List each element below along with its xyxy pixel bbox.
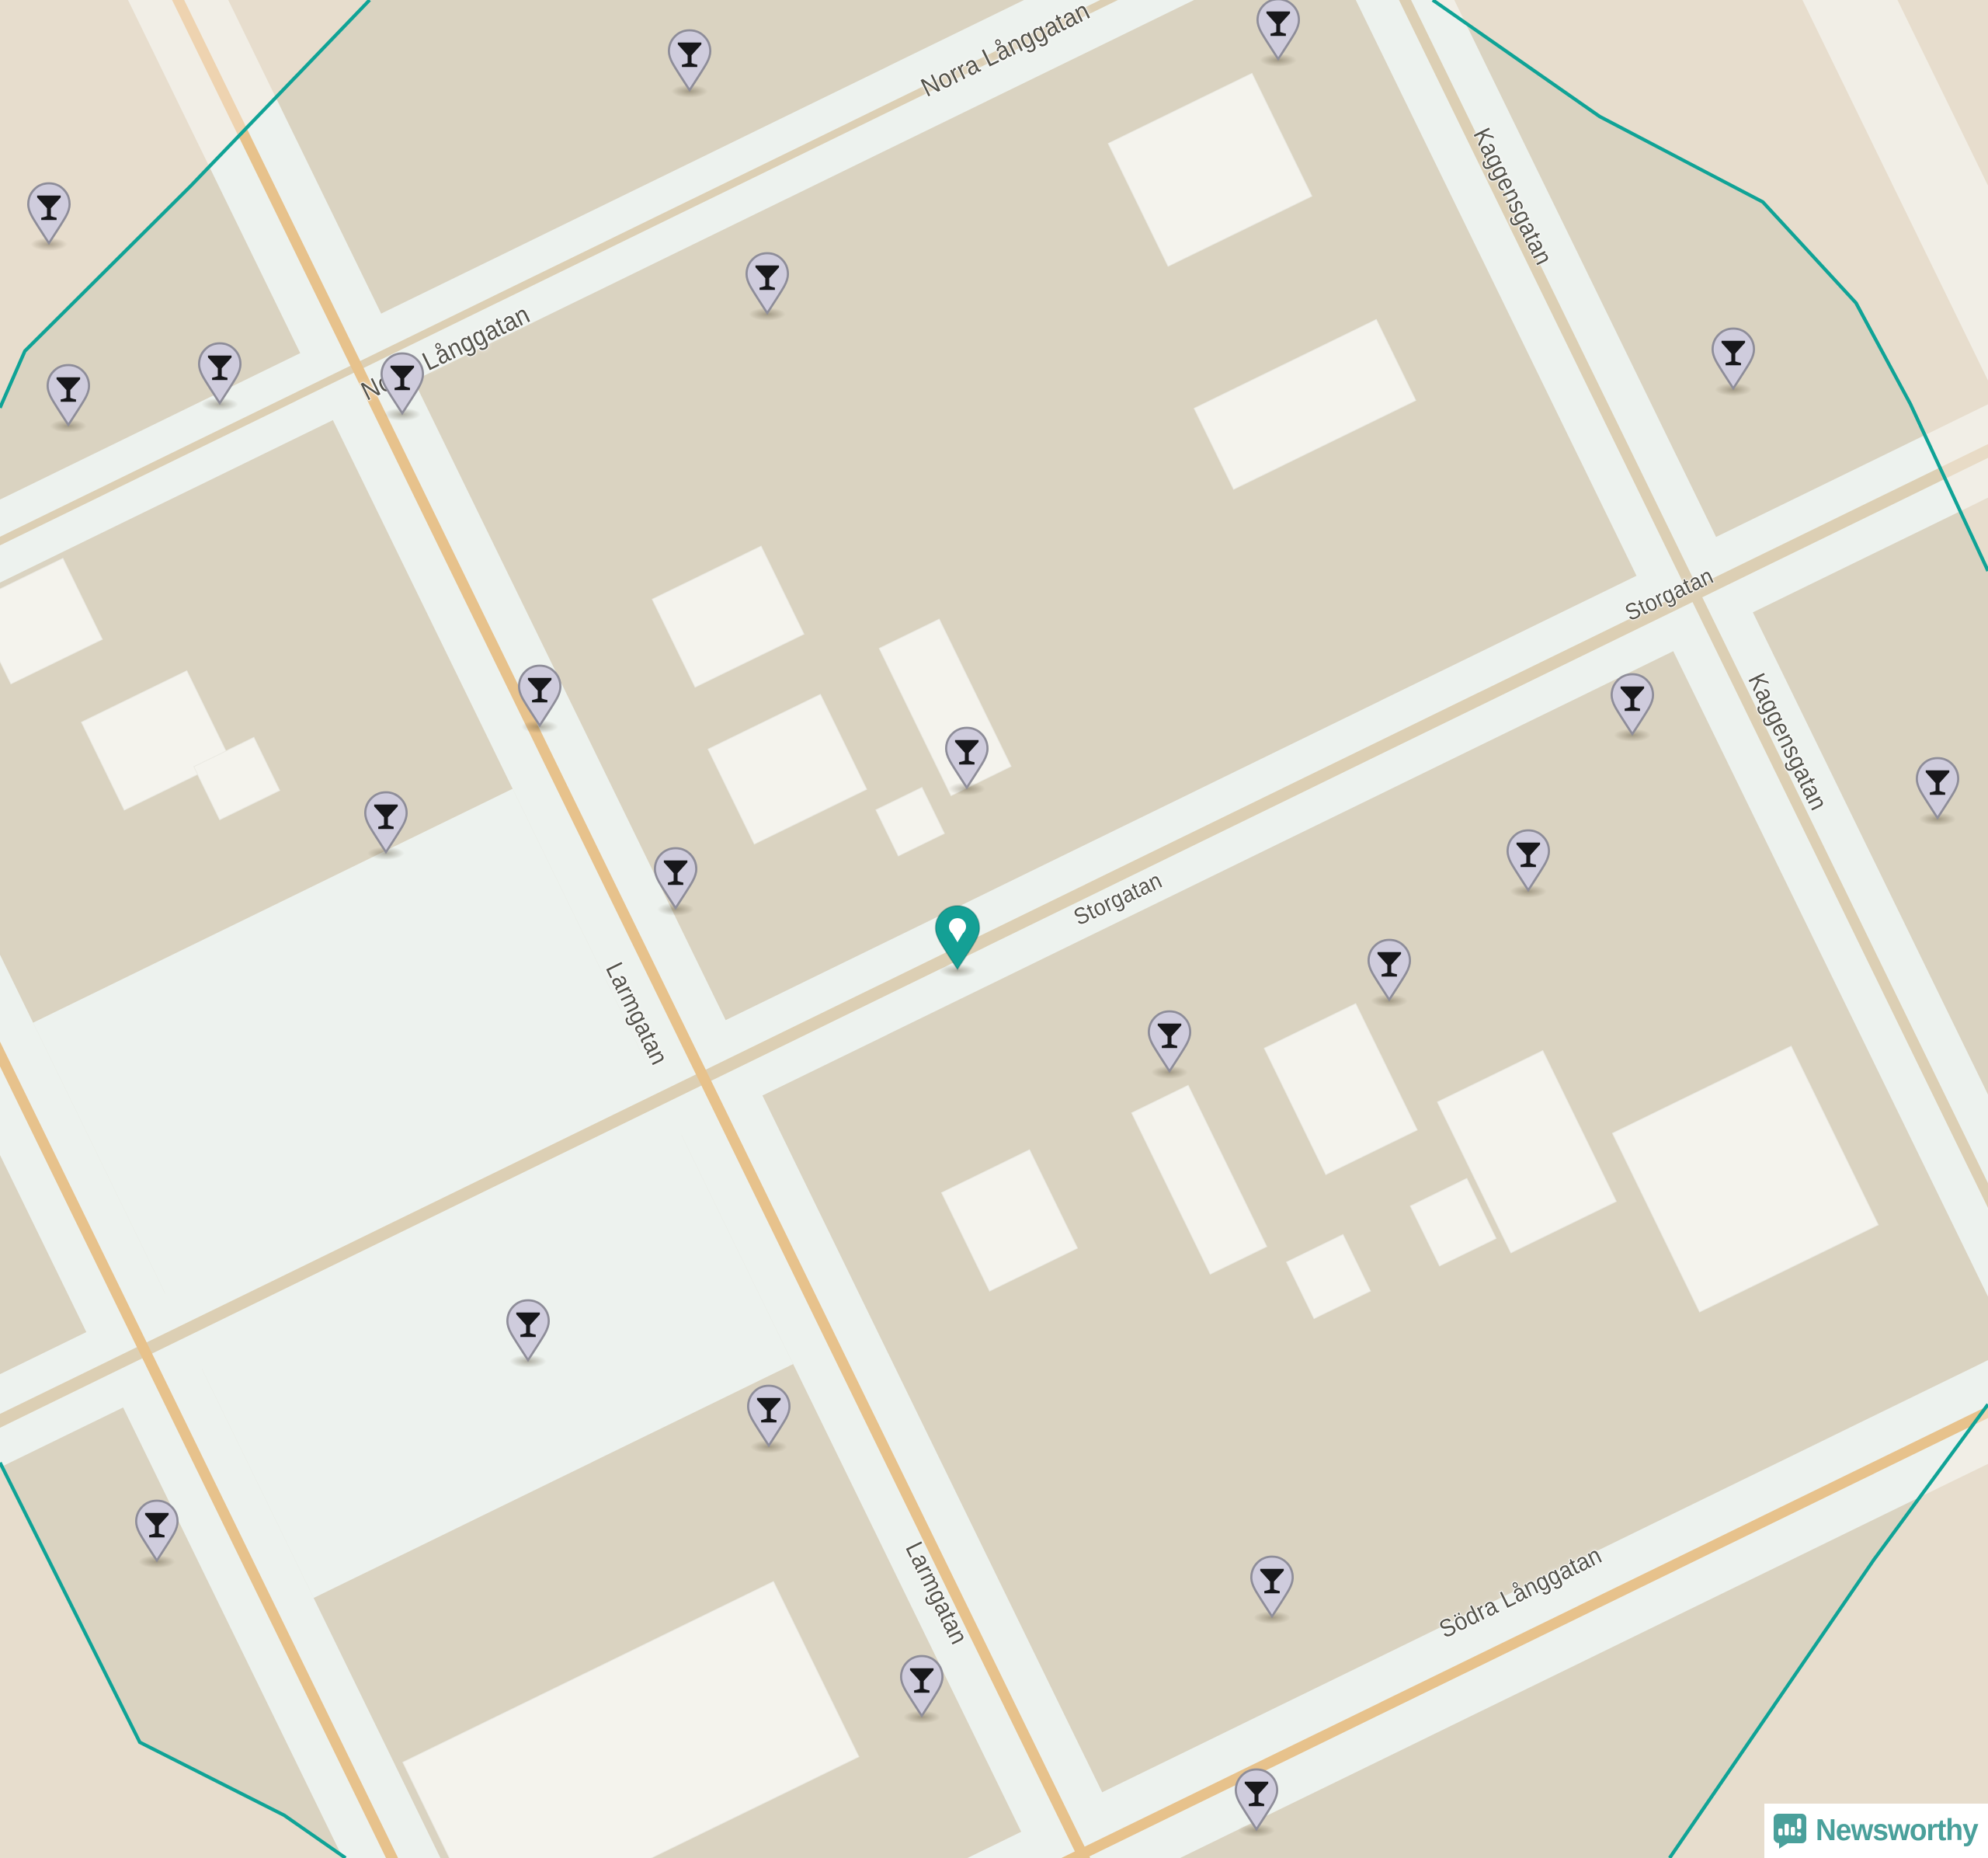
venue-marker-pin[interactable] xyxy=(1504,828,1552,892)
martini-glass-icon xyxy=(1608,672,1656,736)
venue-marker-pin[interactable] xyxy=(25,181,73,245)
martini-glass-icon xyxy=(44,363,92,427)
martini-glass-icon xyxy=(943,725,991,790)
martini-glass-icon xyxy=(378,351,426,416)
martini-glass-icon xyxy=(1248,1554,1296,1619)
venue-marker-pin[interactable] xyxy=(362,790,410,854)
martini-glass-icon xyxy=(196,341,244,405)
venue-marker-pin[interactable] xyxy=(898,1654,946,1718)
martini-glass-icon xyxy=(652,846,700,910)
venue-marker-pin[interactable] xyxy=(1365,938,1413,1002)
watermark-text: Newsworthy xyxy=(1816,1814,1978,1848)
martini-glass-icon xyxy=(1145,1009,1194,1073)
venue-marker-pin[interactable] xyxy=(745,1383,793,1448)
martini-glass-icon xyxy=(516,663,564,728)
venue-marker-pin[interactable] xyxy=(666,28,714,92)
primary-location-pin[interactable] xyxy=(932,903,983,972)
venue-marker-pin[interactable] xyxy=(1254,0,1302,61)
venue-marker-pin[interactable] xyxy=(1913,756,1962,820)
venue-marker-pin[interactable] xyxy=(133,1498,181,1563)
venue-marker-pin[interactable] xyxy=(1145,1009,1194,1073)
newsworthy-watermark: Newsworthy xyxy=(1764,1804,1988,1858)
martini-glass-icon xyxy=(504,1298,552,1362)
venue-marker-pin[interactable] xyxy=(504,1298,552,1362)
martini-glass-icon xyxy=(1504,828,1552,892)
venue-marker-pin[interactable] xyxy=(1248,1554,1296,1619)
martini-glass-icon xyxy=(133,1498,181,1563)
newsworthy-logo-icon xyxy=(1772,1812,1808,1849)
martini-glass-icon xyxy=(362,790,410,854)
venue-marker-pin[interactable] xyxy=(743,251,791,315)
martini-glass-icon xyxy=(1913,756,1962,820)
martini-glass-icon xyxy=(25,181,73,245)
martini-glass-icon xyxy=(1232,1767,1281,1832)
martini-glass-icon xyxy=(745,1383,793,1448)
venue-marker-pin[interactable] xyxy=(44,363,92,427)
martini-glass-icon xyxy=(1709,326,1757,391)
location-pin-icon xyxy=(932,903,983,972)
venue-marker-pin[interactable] xyxy=(516,663,564,728)
venue-marker-pin[interactable] xyxy=(1232,1767,1281,1832)
venue-marker-pin[interactable] xyxy=(378,351,426,416)
venue-marker-pin[interactable] xyxy=(196,341,244,405)
markers-layer xyxy=(0,0,1988,1858)
martini-glass-icon xyxy=(898,1654,946,1718)
martini-glass-icon xyxy=(1365,938,1413,1002)
martini-glass-icon xyxy=(1254,0,1302,61)
venue-marker-pin[interactable] xyxy=(943,725,991,790)
map-canvas[interactable]: Norra LånggatanNorra LånggatanStorgatanS… xyxy=(0,0,1988,1858)
venue-marker-pin[interactable] xyxy=(1608,672,1656,736)
martini-glass-icon xyxy=(743,251,791,315)
venue-marker-pin[interactable] xyxy=(1709,326,1757,391)
venue-marker-pin[interactable] xyxy=(652,846,700,910)
martini-glass-icon xyxy=(666,28,714,92)
